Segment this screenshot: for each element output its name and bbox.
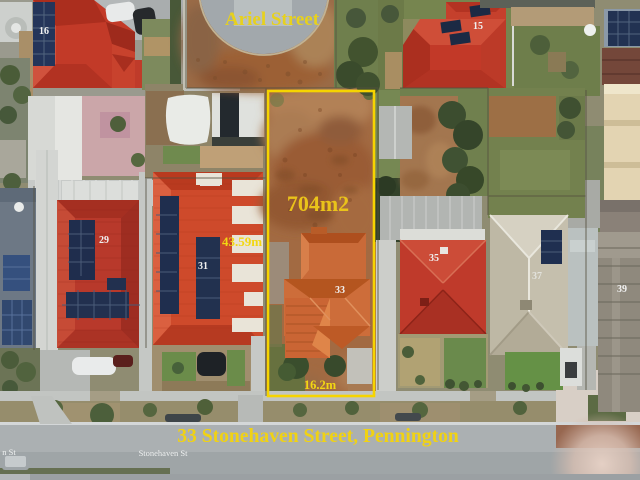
svg-text:35: 35 (429, 253, 439, 264)
svg-text:33: 33 (335, 285, 345, 296)
svg-text:43.59m: 43.59m (222, 234, 262, 249)
svg-text:Ariel Street: Ariel Street (225, 9, 320, 30)
svg-text:Stonehaven St: Stonehaven St (139, 448, 189, 458)
svg-text:15: 15 (473, 21, 483, 32)
svg-text:n St: n St (2, 447, 16, 457)
svg-text:16.2m: 16.2m (304, 378, 337, 392)
svg-text:37: 37 (532, 271, 542, 282)
svg-text:31: 31 (198, 261, 208, 272)
svg-text:29: 29 (99, 235, 109, 246)
svg-text:16: 16 (39, 26, 49, 37)
svg-text:39: 39 (617, 284, 627, 295)
svg-text:33 Stonehaven Street, Penningt: 33 Stonehaven Street, Pennington (177, 426, 459, 447)
svg-text:704m2: 704m2 (287, 191, 349, 216)
